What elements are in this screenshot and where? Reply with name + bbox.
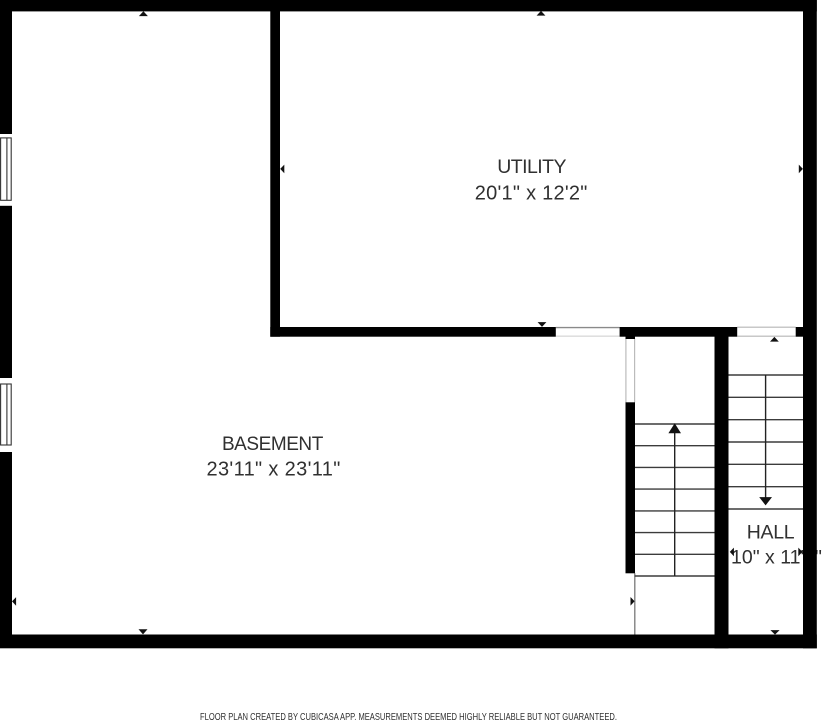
svg-text:UTILITY: UTILITY: [497, 156, 566, 178]
svg-text:BASEMENT: BASEMENT: [222, 434, 324, 455]
svg-text:20'1" x 12'2": 20'1" x 12'2": [475, 182, 588, 204]
svg-text:23'11" x 23'11": 23'11" x 23'11": [206, 458, 340, 480]
svg-text:HALL: HALL: [747, 522, 795, 544]
svg-text:FLOOR PLAN CREATED BY CUBICASA: FLOOR PLAN CREATED BY CUBICASA APP. MEAS…: [200, 712, 617, 720]
